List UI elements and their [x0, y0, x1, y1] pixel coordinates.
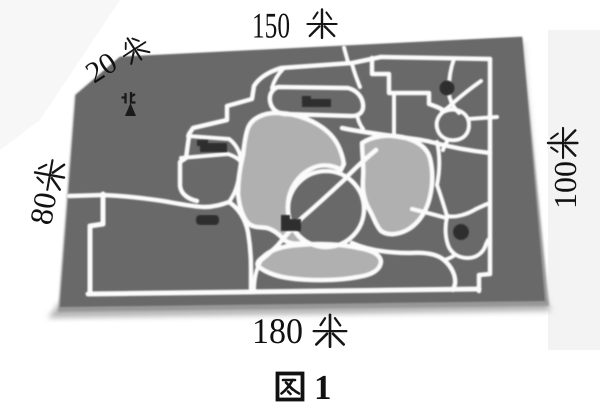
svg-text:1: 1: [314, 368, 332, 407]
svg-text:80: 80: [22, 189, 63, 227]
svg-text:150: 150: [252, 6, 290, 46]
svg-text:180: 180: [252, 311, 303, 351]
svg-text:100: 100: [547, 161, 583, 209]
